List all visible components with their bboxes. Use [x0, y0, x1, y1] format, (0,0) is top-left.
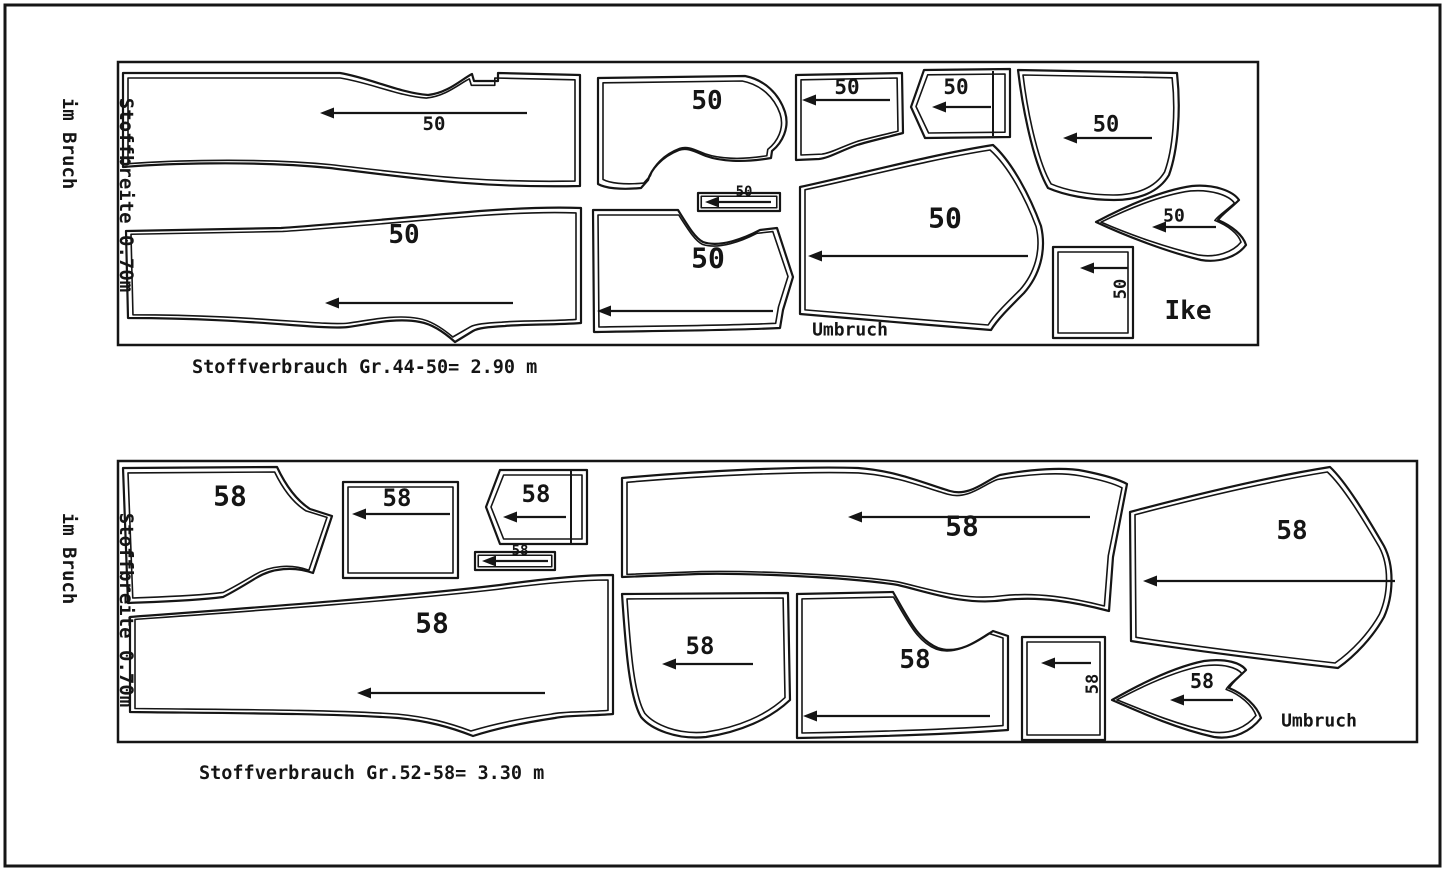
- piece-size-label: 50: [1163, 206, 1185, 227]
- piece-size-label: 58: [899, 645, 930, 675]
- piece-outline: [622, 468, 1127, 611]
- pattern-piece-pocket-square-b: 58: [1022, 637, 1105, 740]
- piece-size-label: 50: [1111, 279, 1131, 299]
- cutting-layout-size-52-58: 5858585858585858585858Umbruch: [118, 461, 1417, 742]
- pattern-piece-side-panel-b: 58: [797, 592, 1008, 738]
- piece-size-label: 50: [388, 220, 419, 250]
- pattern-piece-pocket-square-a: 58: [343, 482, 458, 578]
- pattern-piece-pocket-piece-b: 50: [911, 69, 1010, 138]
- pattern-piece-pocket-square: 50: [1053, 247, 1133, 338]
- piece-size-label: 58: [512, 543, 529, 559]
- pattern-piece-sleeve-piece: 50: [1018, 70, 1179, 200]
- pattern-piece-coat-back-piece: 50: [800, 145, 1043, 330]
- on-fold-text: im Bruch: [59, 513, 78, 707]
- piece-size-label: 58: [522, 480, 551, 508]
- pattern-piece-waistband-strip: 58: [475, 543, 555, 570]
- on-fold-text: im Bruch: [59, 98, 78, 292]
- fabric-usage-note-upper: Stoffverbrauch Gr.44-50= 2.90 m: [192, 357, 537, 378]
- piece-size-label: 58: [1190, 669, 1214, 693]
- piece-size-label: 50: [834, 75, 859, 99]
- fabric-width-text: Stoffbreite 0.70m: [116, 513, 135, 707]
- umbruch-note: Umbruch: [1281, 711, 1357, 732]
- pattern-piece-jacket-front-piece: 50: [598, 76, 787, 189]
- pattern-piece-sleeve-piece: 58: [1130, 467, 1395, 668]
- pattern-piece-waistband-strip: 50: [698, 184, 780, 211]
- piece-size-label: 58: [383, 484, 412, 512]
- pattern-sheet: 5050505050505050505050UmbruchIke58585858…: [0, 0, 1445, 871]
- umbruch-note: Umbruch: [812, 320, 888, 341]
- piece-size-label: 50: [1093, 113, 1120, 138]
- piece-size-label: 58: [945, 510, 979, 543]
- piece-size-label: 50: [736, 184, 753, 200]
- piece-size-label: 50: [691, 86, 722, 116]
- pattern-piece-trouser-front-piece: 50: [123, 73, 580, 186]
- pattern-piece-side-panel-a: 58: [622, 593, 790, 737]
- piece-outline: [1130, 467, 1392, 668]
- piece-size-label: 58: [213, 480, 247, 513]
- piece-size-label: 58: [1083, 674, 1103, 694]
- pattern-piece-pocket-pentagon: 58: [486, 470, 587, 544]
- piece-size-label: 58: [415, 607, 449, 640]
- pattern-piece-trouser-leg-horizontal: 58: [622, 468, 1127, 611]
- piece-size-label: 50: [423, 113, 446, 135]
- pattern-piece-collar-piece: 58: [1112, 660, 1261, 737]
- piece-size-label: 50: [943, 75, 968, 99]
- pattern-piece-jacket-back-piece: 50: [593, 210, 793, 332]
- piece-size-label: 58: [1276, 516, 1307, 546]
- piece-outline: [123, 73, 580, 186]
- piece-size-label: 50: [691, 242, 725, 275]
- pattern-piece-trouser-back-piece: 50: [126, 208, 581, 342]
- cutting-layout-diagram: 5050505050505050505050UmbruchIke58585858…: [0, 0, 1445, 871]
- pattern-piece-pocket-piece-a: 50: [796, 73, 903, 160]
- fabric-width-text: Stoffbreite 0.70m: [116, 98, 135, 292]
- fabric-usage-note-lower: Stoffverbrauch Gr.52-58= 3.30 m: [199, 763, 544, 784]
- piece-size-label: 58: [686, 632, 715, 660]
- ike-signature: Ike: [1165, 296, 1212, 326]
- piece-size-label: 50: [928, 202, 962, 235]
- cutting-layout-size-44-50: 5050505050505050505050UmbruchIke: [118, 62, 1258, 345]
